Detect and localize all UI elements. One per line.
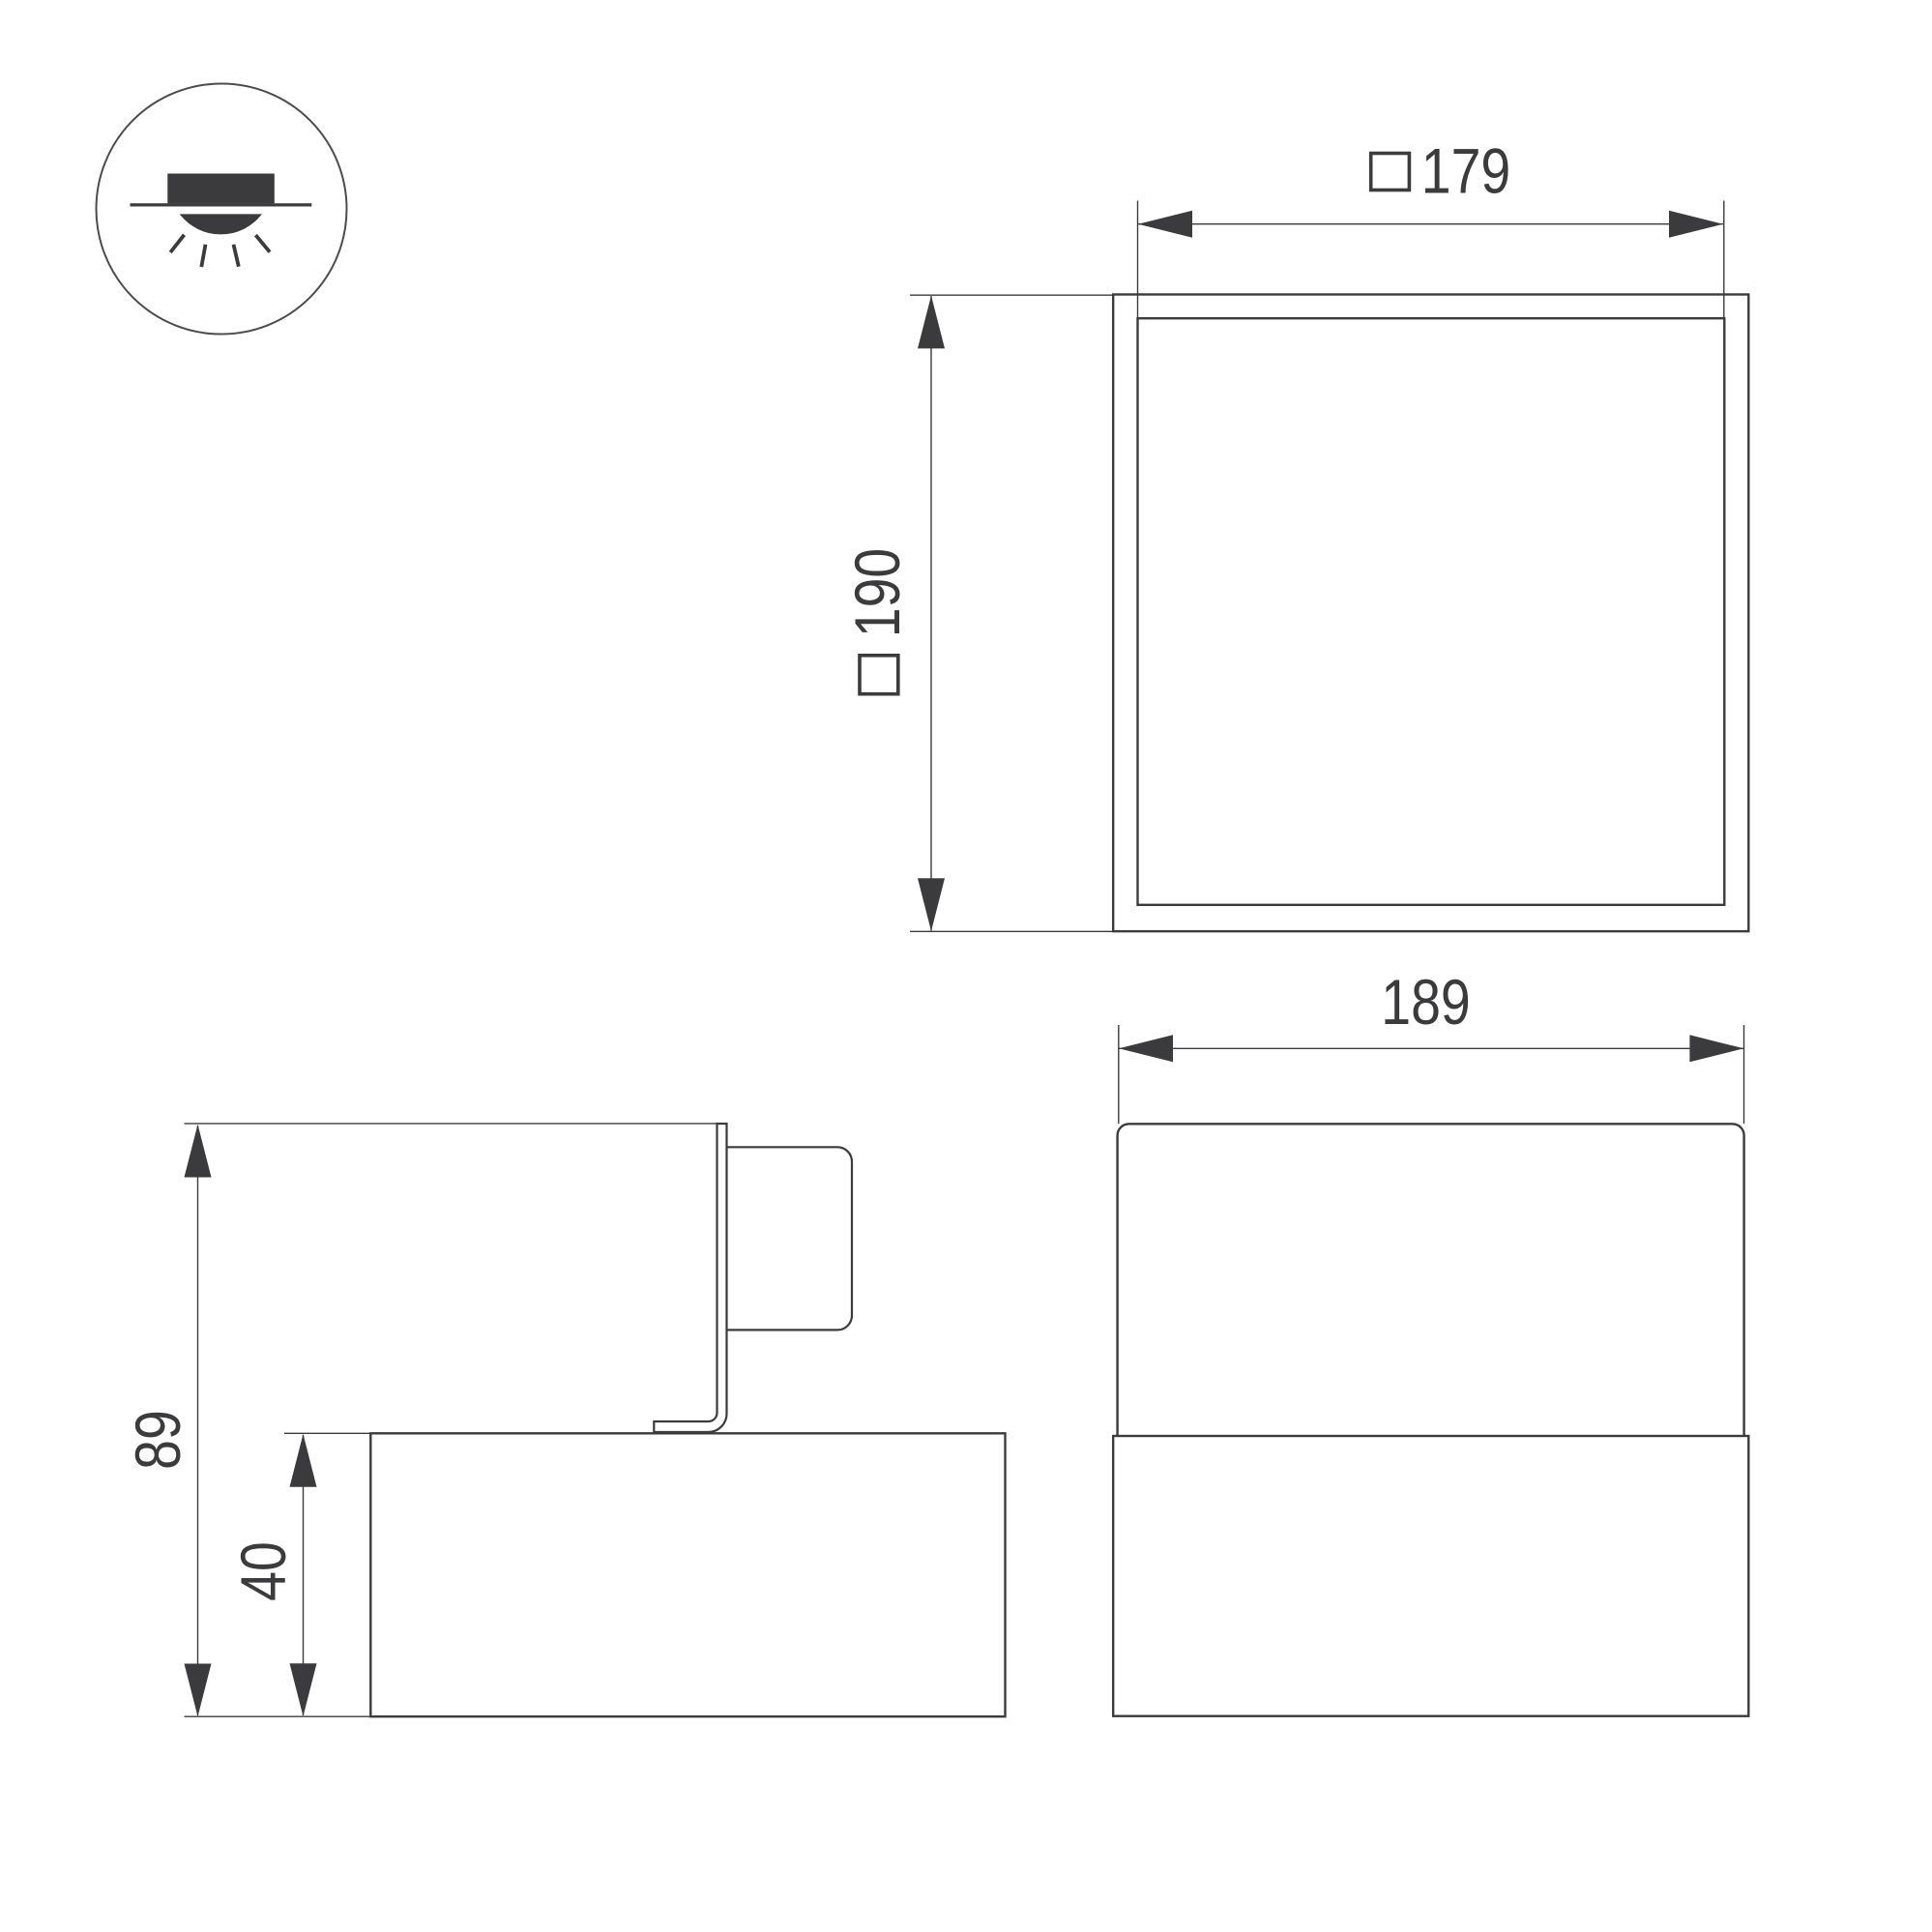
- svg-text:189: 189: [1381, 966, 1470, 1038]
- svg-text:89: 89: [122, 1410, 193, 1470]
- svg-text:179: 179: [1421, 135, 1510, 207]
- svg-text:190: 190: [841, 548, 913, 637]
- svg-text:40: 40: [227, 1541, 299, 1601]
